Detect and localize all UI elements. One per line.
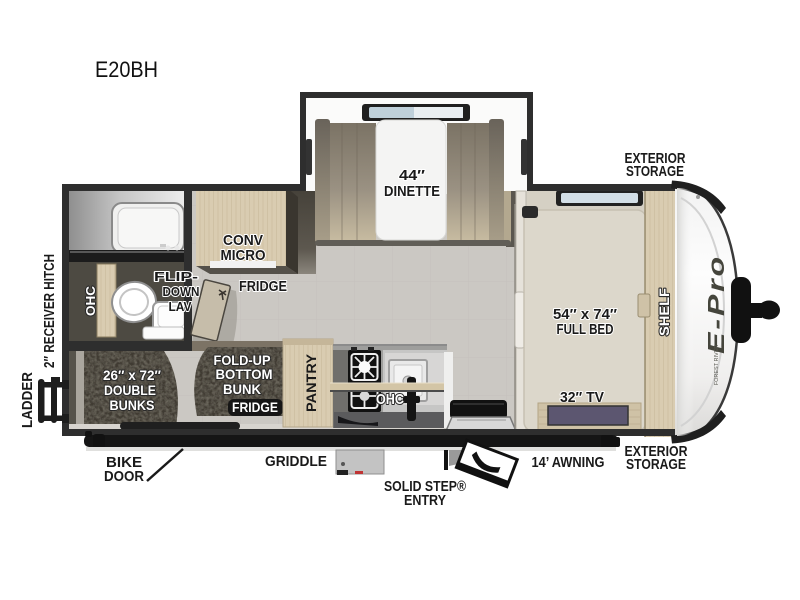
svg-text:MICRO: MICRO [221,247,266,264]
svg-text:ENTRY: ENTRY [404,492,446,509]
svg-text:FOREST RIVER: FOREST RIVER [714,345,720,386]
svg-text:FLIP-: FLIP- [154,269,198,284]
svg-text:26″ x 72″: 26″ x 72″ [103,367,161,383]
svg-text:FULL BED: FULL BED [557,321,614,338]
svg-text:FRIDGE: FRIDGE [232,399,278,415]
svg-text:SHELF: SHELF [656,288,672,336]
svg-text:GRIDDLE: GRIDDLE [265,453,327,470]
svg-text:LAV: LAV [169,299,192,314]
svg-text:DOWN: DOWN [163,284,200,299]
svg-text:2″ RECEIVER HITCH: 2″ RECEIVER HITCH [41,254,58,368]
svg-text:DOUBLE: DOUBLE [104,382,156,398]
svg-text:FRIDGE: FRIDGE [239,278,287,295]
svg-text:14’ AWNING: 14’ AWNING [532,454,605,471]
svg-text:STORAGE: STORAGE [626,163,684,180]
svg-text:DINETTE: DINETTE [384,183,440,200]
svg-text:E20BH: E20BH [95,57,158,82]
svg-text:STORAGE: STORAGE [626,456,686,473]
svg-text:LADDER: LADDER [19,372,36,428]
svg-text:OHC: OHC [83,285,98,316]
svg-text:44″: 44″ [399,167,425,184]
svg-text:BOTTOM: BOTTOM [216,366,273,382]
svg-text:DOOR: DOOR [104,468,144,485]
svg-text:BUNK: BUNK [223,381,261,397]
svg-text:E-Pro: E-Pro [703,254,729,354]
svg-text:PANTRY: PANTRY [303,353,319,412]
svg-text:OHC: OHC [376,391,404,408]
svg-text:BUNKS: BUNKS [110,397,155,413]
